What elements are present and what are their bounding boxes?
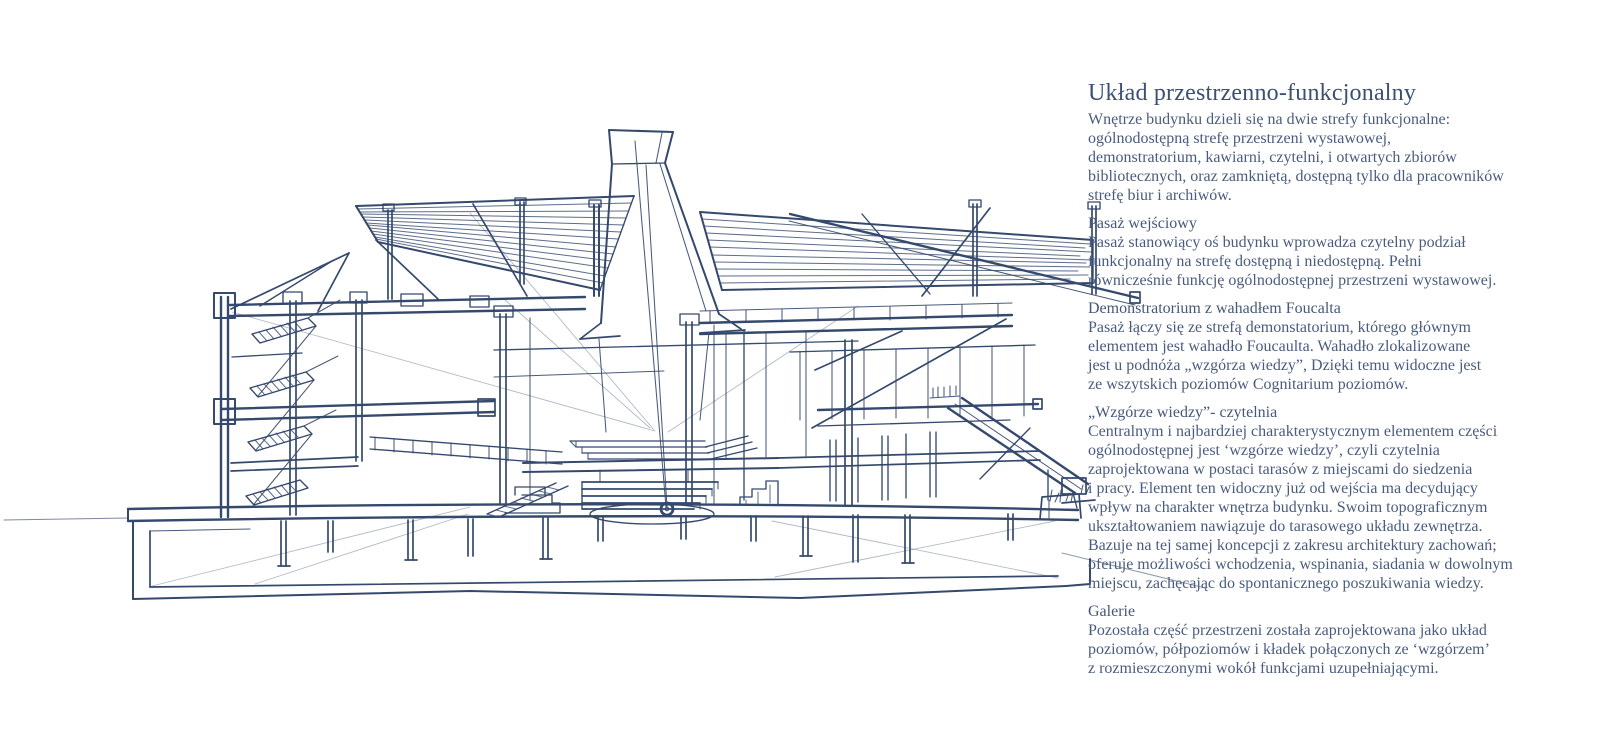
section-body: Centralnym i najbardziej charakterystycz… (1088, 422, 1544, 593)
page-title: Układ przestrzenno-funkcjonalny (1088, 80, 1544, 106)
section-heading: Pasaż wejściowy (1088, 214, 1544, 233)
grass (930, 386, 1089, 502)
foucault-pendulum (590, 141, 714, 524)
section-demonstratorium: Demonstratorium z wahadłem Foucalta Pasa… (1088, 299, 1544, 394)
construction-lines (152, 213, 1205, 588)
section-body: Pozostała część przestrzeni została zapr… (1088, 621, 1544, 678)
portfolio-page: Układ przestrzenno-funkcjonalny Wnętrze … (0, 0, 1600, 733)
section-body: Pasaż stanowiący oś budynku wprowadza cz… (1088, 233, 1544, 290)
section-body: Wnętrze budynku dzieli się na dwie stref… (1088, 110, 1544, 205)
section-wzgorze-wiedzy: „Wzgórze wiedzy”- czytelnia Centralnym i… (1088, 403, 1544, 593)
section-pasaz-wejsciowy: Pasaż wejściowy Pasaż stanowiący oś budy… (1088, 214, 1544, 290)
roof-canopy-right (700, 200, 1140, 305)
section-heading: Demonstratorium z wahadłem Foucalta (1088, 299, 1544, 318)
architectural-section-sketch (0, 0, 1230, 733)
stair-tower (214, 253, 585, 517)
description-column: Układ przestrzenno-funkcjonalny Wnętrze … (1088, 80, 1544, 686)
roof-canopy-left (356, 196, 634, 299)
galleries (494, 303, 1042, 505)
section-intro: Wnętrze budynku dzieli się na dwie stref… (1088, 110, 1544, 205)
section-heading: „Wzgórze wiedzy”- czytelnia (1088, 403, 1544, 422)
section-galerie: Galerie Pozostała część przestrzeni zost… (1088, 602, 1544, 678)
section-heading: Galerie (1088, 602, 1544, 621)
section-body: Pasaż łączy się ze strefą demonstatorium… (1088, 318, 1544, 394)
